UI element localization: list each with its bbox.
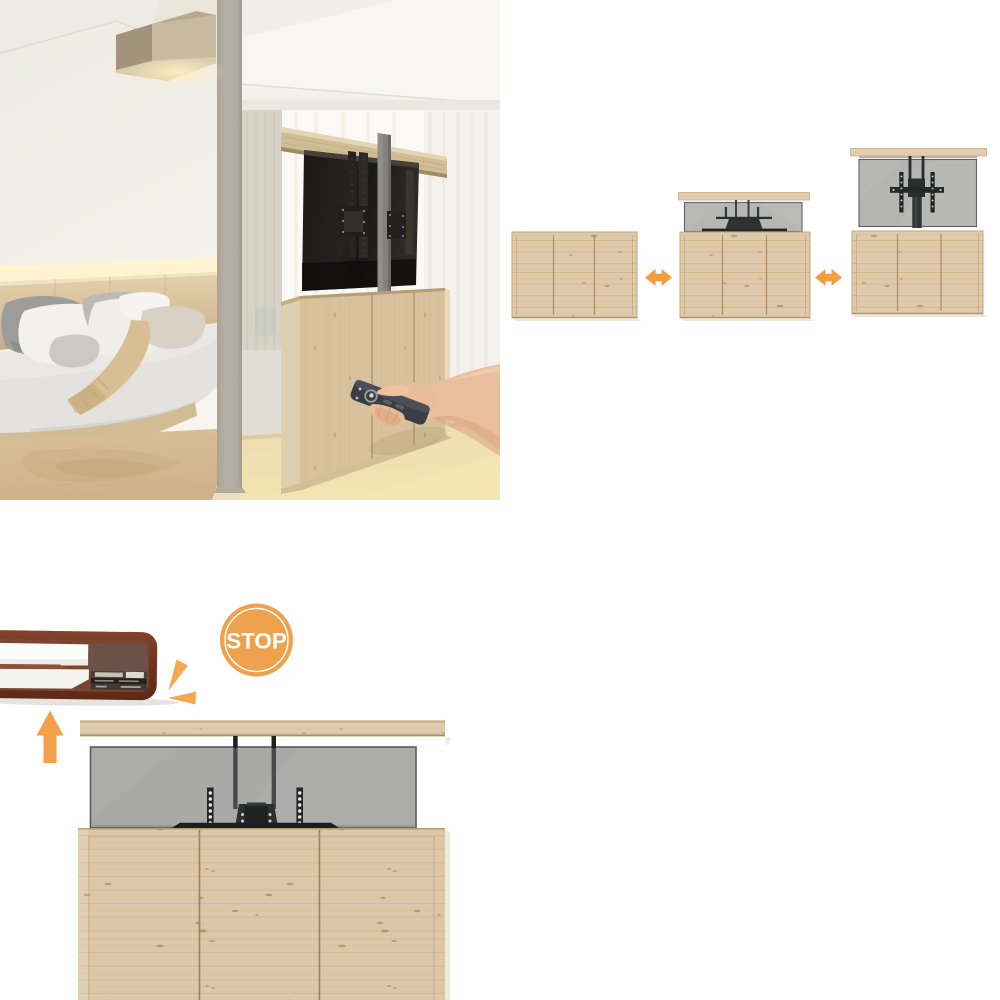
svg-text:STOP: STOP	[226, 629, 287, 654]
